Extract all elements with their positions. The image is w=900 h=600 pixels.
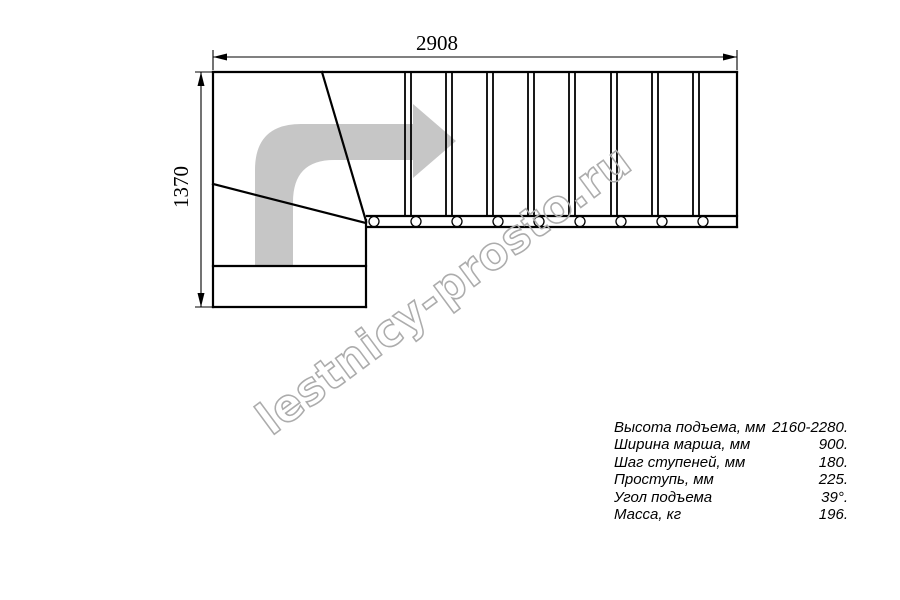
spec-value: 225. [819,471,848,488]
specs-table: Высота подъема, мм 2160-2280. Ширина мар… [614,419,848,523]
baluster-circle [369,217,379,227]
spec-label: Масса, кг [614,506,681,523]
spec-row-lift-height: Высота подъема, мм 2160-2280. [614,419,848,436]
staircase-blueprint-page: 2908 1370 lestnicy-prosto.ru Высота подъ… [0,0,900,600]
baluster-circle [657,217,667,227]
spec-row-angle: Угол подъема 39°. [614,489,848,506]
spec-row-flight-width: Ширина марша, мм 900. [614,436,848,453]
baluster-circle [411,217,421,227]
top-dimension [213,50,737,70]
spec-label: Высота подъема, мм [614,419,766,436]
spec-value: 180. [819,454,848,471]
watermark-text: lestnicy-prosto.ru [246,134,641,445]
left-dimension-label: 1370 [169,166,193,208]
spec-label: Шаг ступеней, мм [614,454,745,471]
spec-row-mass: Масса, кг 196. [614,506,848,523]
spec-value: 39°. [821,489,848,506]
spec-row-step-rise: Шаг ступеней, мм 180. [614,454,848,471]
spec-label: Угол подъема [614,489,712,506]
top-dimension-label: 2908 [416,31,458,55]
dimension-arrow-top [198,72,205,86]
spec-label: Ширина марша, мм [614,436,750,453]
spec-value: 196. [819,506,848,523]
spec-row-tread: Проступь, мм 225. [614,471,848,488]
left-dimension [195,72,212,307]
baluster-circle [698,217,708,227]
dimension-arrow-left [213,54,227,61]
baluster-circle [452,217,462,227]
spec-label: Проступь, мм [614,471,714,488]
baluster-circle [616,217,626,227]
dimension-arrow-right [723,54,737,61]
spec-value: 900. [819,436,848,453]
spec-value: 2160-2280. [772,419,848,436]
dimension-arrow-bottom [198,293,205,307]
